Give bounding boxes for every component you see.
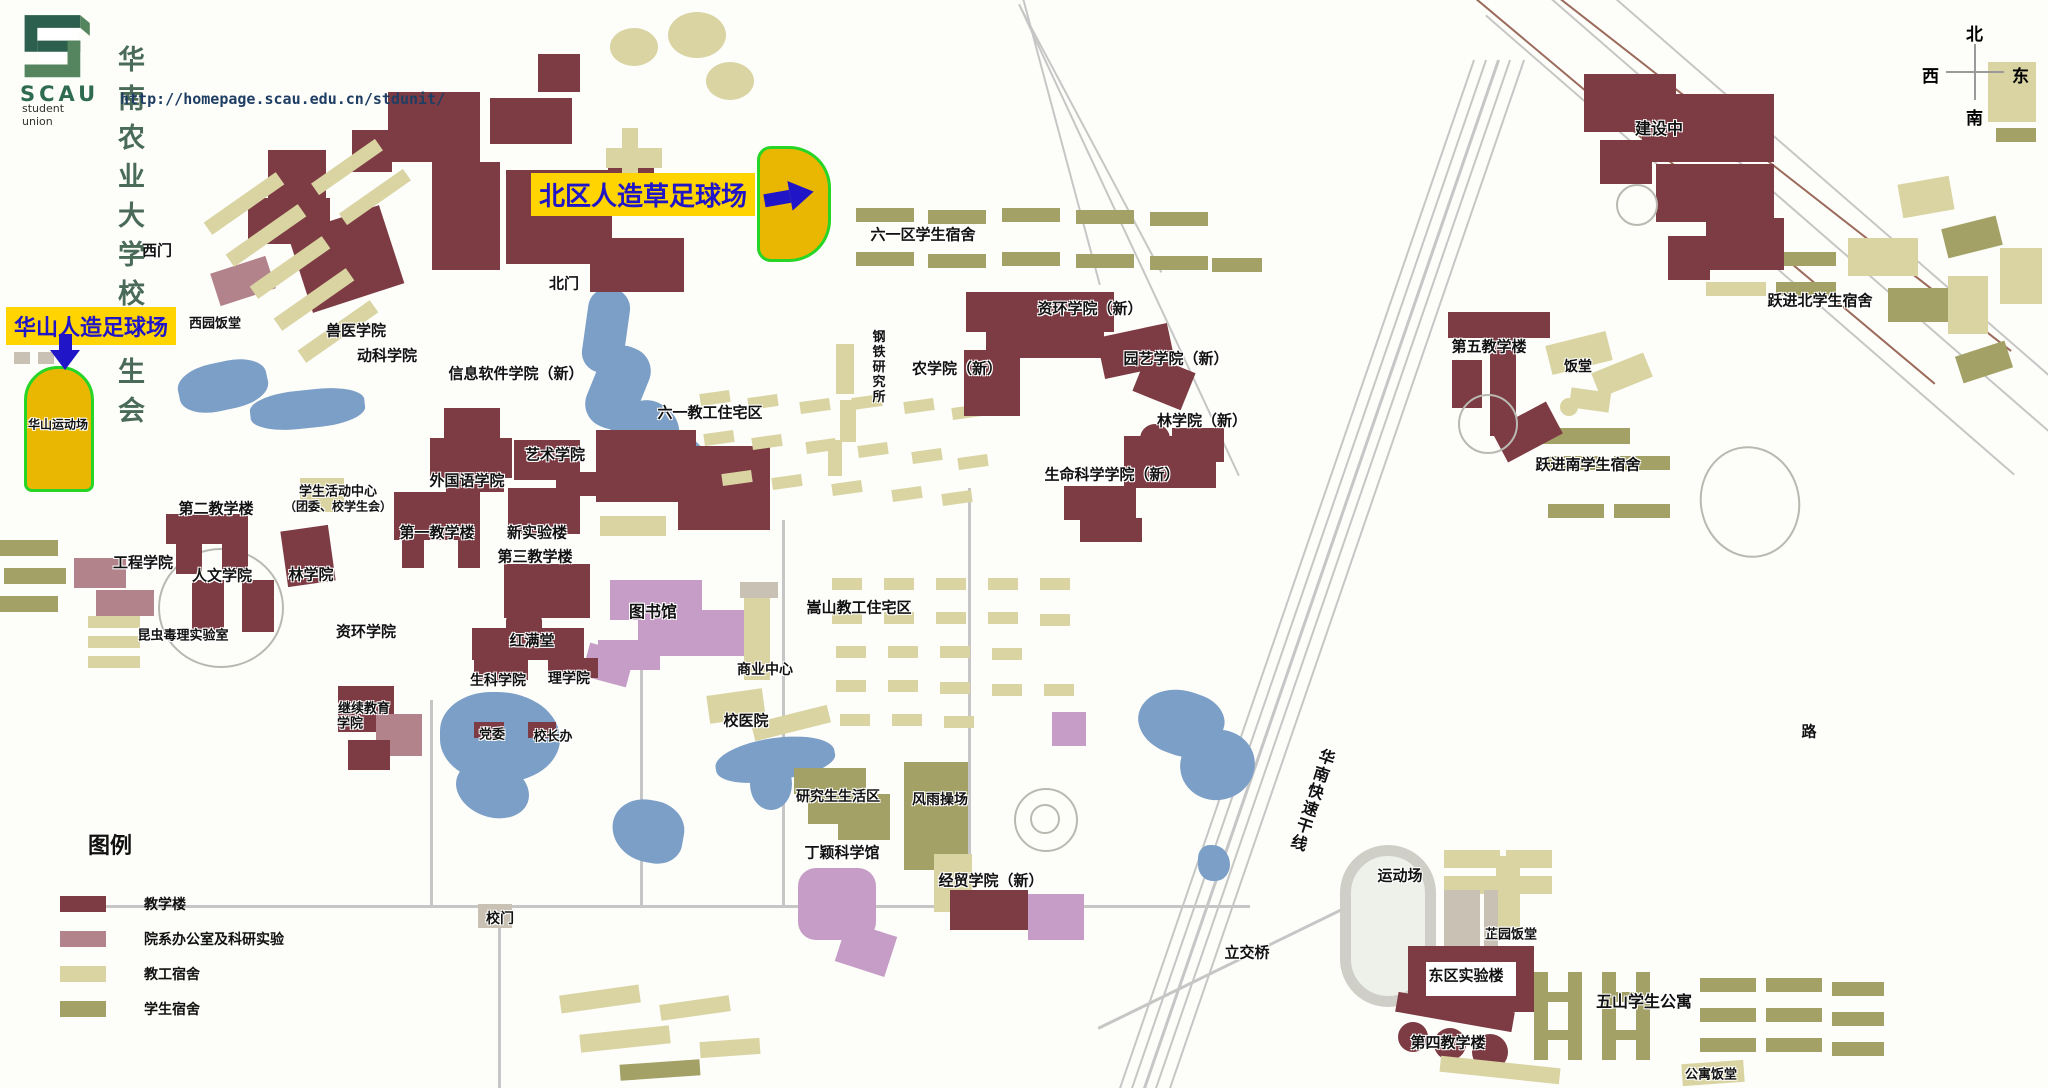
legend-row: 学生宿舍 bbox=[60, 999, 284, 1019]
map-label: 跃进北学生宿舍 bbox=[1767, 290, 1872, 311]
map-label: 钢铁研究所 bbox=[868, 330, 887, 405]
annotation-arrow-down-icon bbox=[50, 334, 80, 370]
map-label: 图书馆 bbox=[629, 598, 677, 622]
map-label: 六一区学生宿舍 bbox=[870, 224, 975, 245]
map-label: 第三教学楼 bbox=[497, 546, 572, 567]
map-label: 六一教工住宅区 bbox=[657, 402, 762, 423]
legend-label: 院系办公室及科研实验 bbox=[144, 929, 284, 949]
map-label: 第五教学楼 bbox=[1451, 336, 1526, 357]
compass-rose: 北 南 西 东 bbox=[1896, 8, 2048, 138]
map-label: 校长办 bbox=[533, 726, 572, 745]
legend-swatch bbox=[60, 1001, 106, 1017]
map-label: 资环学院（新） bbox=[1037, 298, 1142, 319]
map-label: 党委 bbox=[479, 724, 505, 743]
legend-swatch bbox=[60, 931, 106, 947]
map-label: 风雨操场 bbox=[912, 789, 968, 809]
map-label: 人文学院 bbox=[192, 565, 252, 586]
map-label: 西园饭堂 bbox=[189, 313, 241, 332]
map-label: 丁颖科学馆 bbox=[804, 842, 879, 863]
map-label: 路 bbox=[1801, 721, 1816, 742]
map-label: 华山运动场 bbox=[28, 416, 88, 433]
compass-north-label: 北 bbox=[1966, 20, 1983, 45]
legend: 图例 教学楼院系办公室及科研实验教工宿舍学生宿舍 bbox=[60, 828, 284, 1034]
map-label: 工程学院 bbox=[113, 552, 173, 573]
map-label: 校医院 bbox=[723, 710, 768, 731]
legend-row: 教学楼 bbox=[60, 894, 284, 914]
map-label: 芷园饭堂 bbox=[1485, 924, 1537, 943]
map-label: 建设中 bbox=[1635, 115, 1683, 139]
legend-label: 教学楼 bbox=[144, 894, 186, 914]
map-label: 研究生生活区 bbox=[796, 786, 880, 806]
map-label: 第四教学楼 bbox=[1410, 1032, 1485, 1053]
logo-caption: student union bbox=[22, 102, 64, 128]
map-label: 资环学院 bbox=[336, 621, 396, 642]
map-label: 艺术学院 bbox=[525, 444, 585, 465]
legend-label: 学生宿舍 bbox=[144, 999, 200, 1019]
map-label: 商业中心 bbox=[737, 659, 793, 679]
map-label: 农学院（新） bbox=[912, 358, 1002, 379]
map-label: 公寓饭堂 bbox=[1685, 1064, 1737, 1083]
map-label: 校门 bbox=[486, 908, 514, 928]
compass-line-vertical bbox=[1974, 44, 1976, 100]
compass-west-label: 西 bbox=[1922, 62, 1939, 87]
legend-swatch bbox=[60, 896, 106, 912]
compass-east-label: 东 bbox=[2012, 62, 2029, 87]
map-label: 饭堂 bbox=[1564, 356, 1592, 376]
legend-label: 教工宿舍 bbox=[144, 964, 200, 984]
map-label: 第一教学楼 bbox=[399, 522, 474, 543]
map-label: 北门 bbox=[549, 273, 579, 294]
label-layer: 西门西园饭堂兽医学院动科学院信息软件学院（新）北门六一区学生宿舍资环学院（新）园… bbox=[0, 0, 2048, 1088]
map-label: 跃进南学生宿舍 bbox=[1535, 454, 1640, 475]
annotation-north-artificial-turf-field: 北区人造草足球场 bbox=[531, 173, 755, 216]
map-label: 运动场 bbox=[1377, 865, 1422, 886]
compass-south-label: 南 bbox=[1966, 104, 1983, 129]
map-label: 嵩山教工住宅区 bbox=[806, 597, 911, 618]
map-label: 第二教学楼 bbox=[178, 498, 253, 519]
map-label: 五山学生公寓 bbox=[1596, 988, 1692, 1012]
map-label: 学院 bbox=[337, 713, 363, 732]
map-label: （团委、校学生会） bbox=[284, 498, 392, 515]
map-label: 华南快速干线 bbox=[1283, 745, 1339, 855]
map-label: 东区实验楼 bbox=[1428, 965, 1503, 986]
legend-swatch bbox=[60, 966, 106, 982]
map-label: 理学院 bbox=[548, 668, 590, 688]
map-label: 红满堂 bbox=[509, 630, 554, 651]
homepage-url: http://homepage.scau.edu.cn/stdunit/ bbox=[120, 90, 445, 108]
map-label: 立交桥 bbox=[1224, 942, 1269, 963]
legend-row: 教工宿舍 bbox=[60, 964, 284, 984]
map-label: 生命科学学院（新） bbox=[1044, 464, 1179, 485]
legend-title: 图例 bbox=[88, 828, 284, 860]
legend-items: 教学楼院系办公室及科研实验教工宿舍学生宿舍 bbox=[60, 894, 284, 1019]
map-label: 林学院 bbox=[288, 564, 333, 585]
scau-logo-icon bbox=[18, 12, 98, 82]
map-label: 动科学院 bbox=[357, 345, 417, 366]
map-label: 新实验楼 bbox=[507, 522, 567, 543]
map-label: 外国语学院 bbox=[429, 470, 504, 491]
legend-row: 院系办公室及科研实验 bbox=[60, 929, 284, 949]
annotation-huashan-artificial-field: 华山人造足球场 bbox=[6, 307, 176, 345]
map-label: 园艺学院（新） bbox=[1123, 348, 1228, 369]
map-label: 经贸学院（新） bbox=[938, 870, 1043, 891]
map-label: 林学院（新） bbox=[1157, 410, 1247, 431]
map-label: 生科学院 bbox=[470, 670, 526, 690]
campus-map-canvas: 西门西园饭堂兽医学院动科学院信息软件学院（新）北门六一区学生宿舍资环学院（新）园… bbox=[0, 0, 2048, 1088]
map-label: 信息软件学院（新） bbox=[448, 363, 583, 384]
map-label: 兽医学院 bbox=[326, 320, 386, 341]
map-label: 昆虫毒理实验室 bbox=[137, 625, 228, 644]
